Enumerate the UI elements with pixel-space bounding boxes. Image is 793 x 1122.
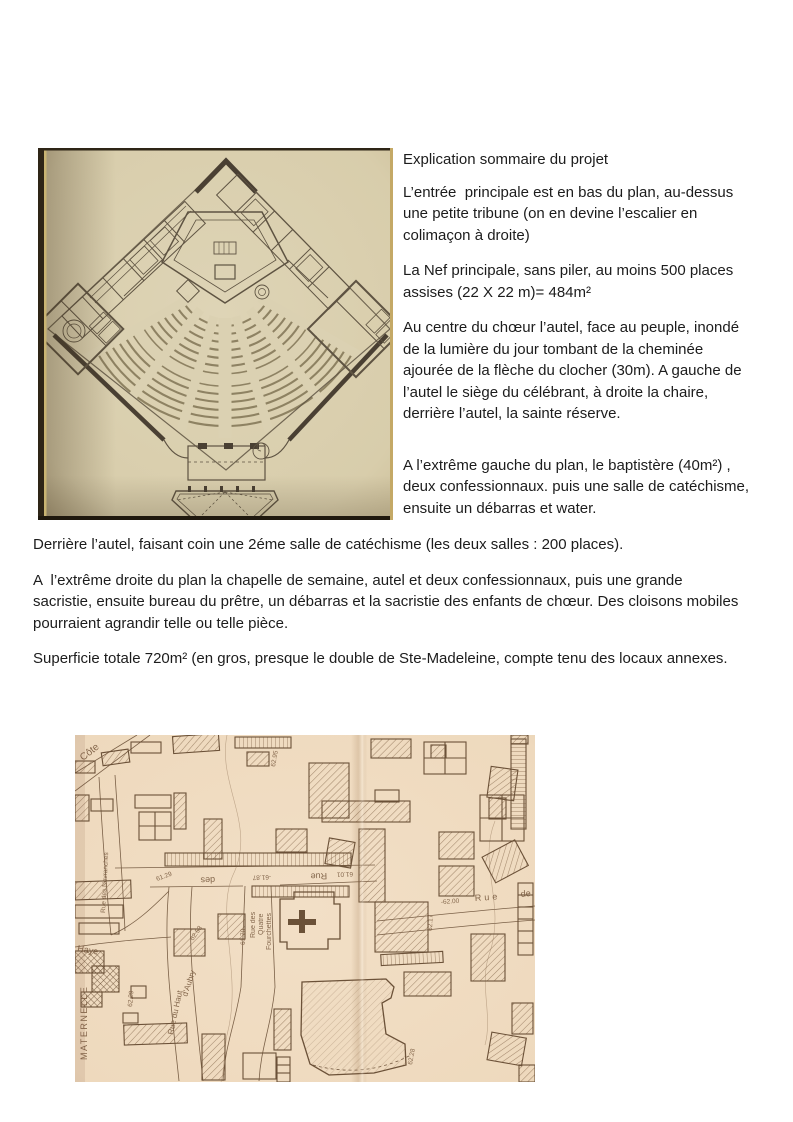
svg-text:Fourchettes: Fourchettes	[266, 913, 273, 950]
svg-text:des: des	[200, 875, 215, 886]
paragraph-nef: La Nef principale, sans piler, au moins …	[403, 260, 755, 303]
floor-plan-drawing	[38, 148, 393, 520]
paragraph-choeur: Au centre du chœur l’autel, face au peup…	[403, 317, 755, 425]
paragraph-gauche: A l’extrême gauche du plan, le baptistèr…	[403, 455, 755, 520]
section-title: Explication sommaire du projet	[403, 149, 755, 171]
paper-fold	[351, 735, 367, 1082]
paragraph-droite: A l’extrême droite du plan la chapelle d…	[33, 570, 745, 635]
svg-text:Rue des: Rue des	[250, 911, 257, 938]
svg-text:-62.00: -62.00	[441, 898, 460, 906]
site-map-drawing: CôteRue des NovranchesHayeMATERNELLERue …	[75, 735, 535, 1082]
paragraph-derriere-autel: Derrière l’autel, faisant coin une 2éme …	[33, 534, 745, 556]
svg-text:-61.87: -61.87	[252, 873, 271, 881]
svg-text:61.70: 61.70	[240, 928, 247, 945]
site-map-photo: CôteRue des NovranchesHayeMATERNELLERue …	[75, 735, 535, 1082]
svg-text:61.01: 61.01	[336, 870, 353, 878]
floor-plan-photo	[38, 148, 393, 520]
svg-text:Rue: Rue	[310, 871, 327, 882]
svg-text:62.29: 62.29	[127, 990, 135, 1007]
photo-left-edge	[38, 148, 44, 520]
svg-text:de: de	[520, 888, 531, 899]
text-full-width: Derrière l’autel, faisant coin une 2éme …	[33, 534, 745, 684]
svg-text:Quatre: Quatre	[258, 913, 265, 935]
paragraph-superficie: Superficie totale 720m² (en gros, presqu…	[33, 648, 745, 670]
paragraph-entree: L’entrée principale est en bas du plan, …	[403, 182, 755, 247]
svg-text:62.17: 62.17	[427, 914, 435, 931]
text-column: Explication sommaire du projet L’entrée …	[403, 149, 755, 533]
svg-text:Rue: Rue	[474, 891, 500, 903]
